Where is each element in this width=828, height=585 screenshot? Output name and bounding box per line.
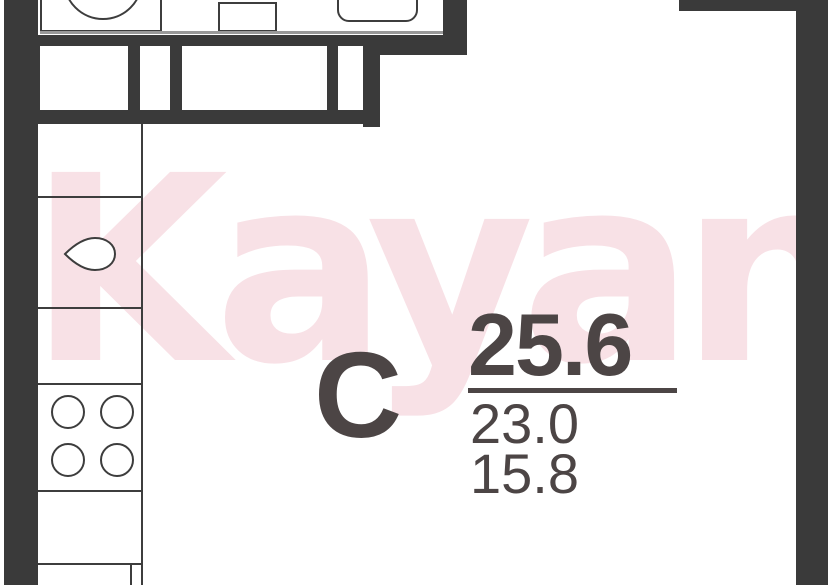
washing-machine-drum-icon (63, 0, 143, 20)
counter-divider (38, 563, 143, 565)
counter-divider (38, 490, 143, 492)
counter-divider (38, 383, 143, 385)
floor-plan: Kayan С 25.6 23.0 15.8 (0, 0, 828, 585)
wall-right (796, 0, 828, 585)
washing-machine-icon (40, 0, 162, 32)
brand-watermark: Kayan (28, 142, 828, 400)
shaft-niche-2 (140, 46, 170, 110)
shaft-niche-4 (338, 46, 363, 110)
shaft-niche-1 (40, 46, 128, 110)
bathroom-fixtures-strip (0, 0, 828, 35)
bathtub-icon (337, 0, 418, 22)
cabinet-divider (130, 565, 132, 585)
kitchen-counter-edge (141, 124, 143, 585)
teardrop-sink-icon (62, 233, 120, 275)
counter-divider (38, 196, 143, 198)
interior-wall-pier (363, 46, 380, 127)
area-tertiary-value: 15.8 (470, 446, 579, 502)
sink-icon (218, 2, 277, 32)
area-total-value: 25.6 (468, 301, 631, 389)
unit-type-label: С (314, 334, 402, 456)
shaft-niche-3 (182, 46, 327, 110)
counter-divider (38, 307, 143, 309)
counter-edge-line (40, 31, 443, 34)
stove-burners-icon (48, 392, 136, 480)
